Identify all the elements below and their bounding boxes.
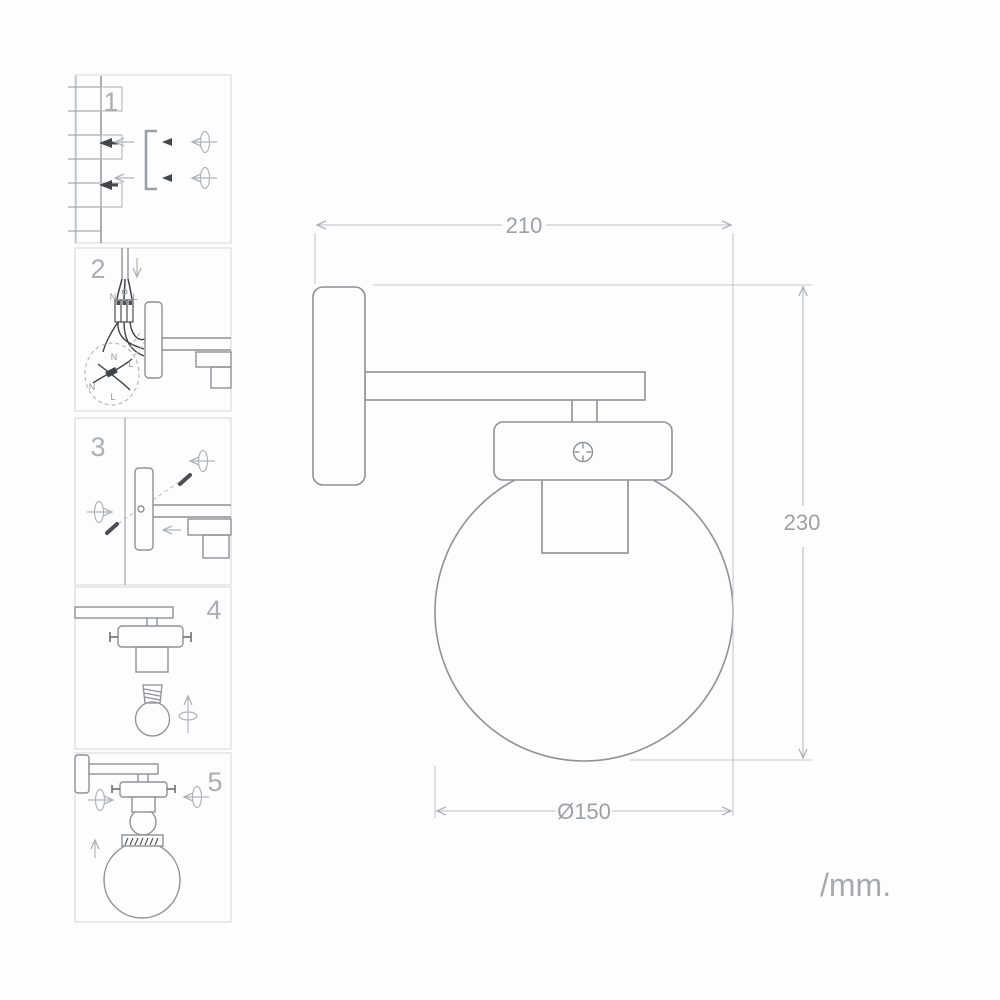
lamp-holder bbox=[118, 626, 183, 647]
wall-plate bbox=[313, 287, 365, 485]
screw-tip-icon bbox=[162, 138, 172, 182]
step-2-number: 2 bbox=[90, 254, 105, 284]
wire-label-live: L bbox=[132, 292, 137, 302]
dimension-width bbox=[315, 225, 733, 816]
arm-top-view bbox=[75, 607, 173, 618]
terminal-block bbox=[115, 300, 133, 322]
bulb-rotation-icon bbox=[179, 696, 197, 733]
lamp-holder bbox=[120, 782, 167, 797]
diagram-canvas: 1 bbox=[0, 0, 1000, 1000]
step-5-drawing bbox=[75, 755, 209, 918]
arm bbox=[89, 764, 158, 774]
screw-rotation-icon bbox=[192, 132, 217, 189]
mounting-arm bbox=[365, 372, 645, 400]
socket bbox=[136, 647, 168, 672]
dimension-diameter-value: Ø150 bbox=[557, 799, 611, 824]
supply-cable bbox=[122, 248, 128, 279]
units-label: /mm. bbox=[820, 867, 891, 903]
push-left-arrow-icon bbox=[115, 142, 134, 178]
step-2-fixture bbox=[145, 302, 231, 388]
step-3-number: 3 bbox=[90, 432, 105, 462]
step-1-drawing bbox=[68, 76, 217, 243]
step-5-number: 5 bbox=[207, 767, 222, 797]
detail-label-l1: L bbox=[128, 359, 133, 369]
wall-anchor-icon bbox=[99, 138, 118, 190]
step-4-drawing bbox=[75, 607, 197, 736]
dimension-height-value: 230 bbox=[784, 510, 821, 535]
step-1-number: 1 bbox=[103, 87, 118, 117]
wire-label-neutral: N bbox=[110, 292, 117, 302]
detail-label-n2: N bbox=[89, 382, 96, 392]
glass-globe-part bbox=[104, 835, 180, 918]
detail-bubble-wires bbox=[93, 359, 132, 390]
main-lamp-drawing bbox=[313, 287, 733, 761]
installed-bulb bbox=[130, 809, 156, 835]
side-screw-icon bbox=[110, 632, 191, 642]
detail-label-l2: L bbox=[110, 392, 115, 402]
socket bbox=[132, 797, 155, 812]
step-4-number: 4 bbox=[206, 595, 221, 625]
connection-wires bbox=[103, 322, 145, 356]
light-bulb-icon bbox=[136, 685, 170, 736]
side-screw-icon bbox=[112, 785, 175, 793]
socket bbox=[542, 479, 628, 553]
installation-diagram: 1 bbox=[0, 0, 1000, 1000]
detail-label-n1: N bbox=[111, 352, 118, 362]
lamp-holder-cap bbox=[494, 422, 672, 480]
dimension-width-value: 210 bbox=[506, 213, 543, 238]
wall-plate-side bbox=[75, 755, 89, 793]
step-3-drawing bbox=[87, 418, 231, 585]
mounting-bracket-profile bbox=[146, 131, 157, 189]
